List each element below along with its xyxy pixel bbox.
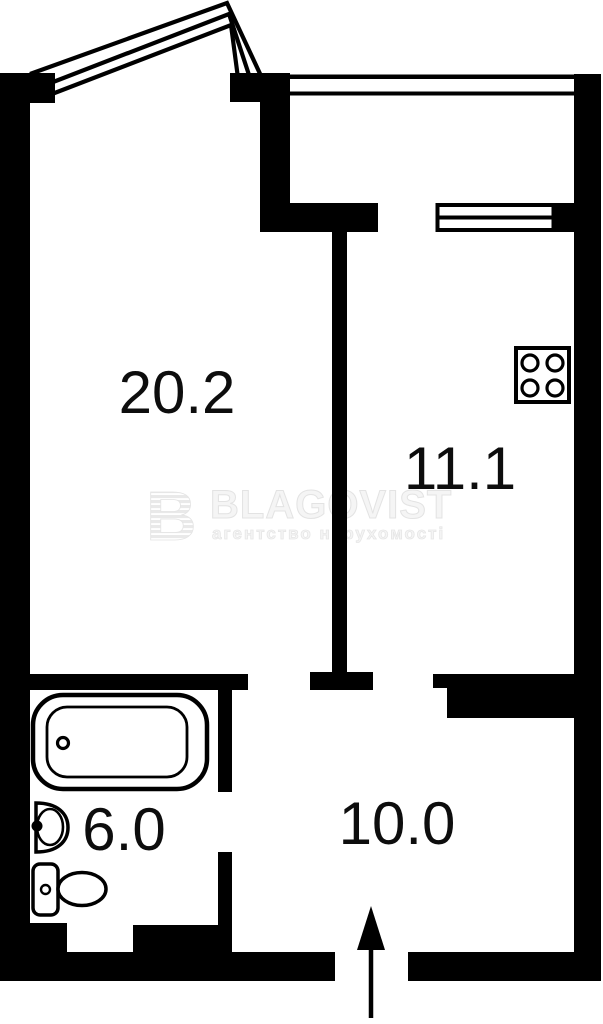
wall-bathroom-right-upper	[218, 690, 232, 792]
bay-window-line-inner	[52, 25, 238, 94]
stove-icon	[516, 348, 569, 402]
watermark-tagline-text: агентство нерухомості	[212, 524, 445, 543]
toilet-button	[41, 885, 50, 894]
floor-plan: B BLAGOVIST агентство нерухомості	[0, 0, 603, 1024]
bathtub-icon	[33, 695, 207, 789]
sink-tap	[32, 821, 43, 832]
wall-left-exterior	[0, 73, 30, 981]
wall-window-filler	[555, 203, 574, 232]
window-outer-line	[287, 75, 575, 80]
room-label-living: 20.2	[119, 359, 236, 426]
room-label-bathroom: 6.0	[82, 796, 165, 863]
floor-plan-canvas: B BLAGOVIST агентство нерухомості	[0, 0, 603, 1024]
bay-window-line-middle	[48, 14, 250, 84]
wall-loggia-left	[260, 100, 290, 204]
wall-bay-right-block	[230, 73, 290, 102]
sink-icon	[32, 803, 69, 852]
wall-middle-partition-cap	[310, 672, 373, 690]
wall-bottom-right	[408, 952, 601, 981]
wall-bathroom-bottom-left	[0, 923, 67, 952]
stove-burner	[547, 380, 563, 396]
entrance-arrow-head	[357, 906, 385, 950]
window-icon	[287, 75, 575, 96]
wall-bathroom-right-lower	[218, 852, 232, 925]
wall-bathroom-top	[18, 674, 248, 690]
stove-burner	[522, 380, 538, 396]
wall-kitchen-bottom	[447, 688, 574, 718]
wall-right-exterior	[574, 74, 601, 981]
window-inner-line	[287, 92, 575, 96]
wall-bathroom-bottom-right	[133, 925, 232, 952]
entrance-arrow-icon	[357, 906, 385, 1018]
toilet-bowl	[58, 873, 106, 906]
room-label-hallway: 10.0	[339, 790, 456, 857]
wall-loggia-bottom	[260, 203, 378, 232]
wall-bottom-left	[0, 952, 335, 981]
room-label-kitchen: 11.1	[404, 435, 516, 502]
stove-burner	[522, 355, 538, 371]
stove-burner	[547, 355, 563, 371]
window-unit-icon	[437, 205, 554, 230]
bathtub-drain	[58, 738, 69, 749]
watermark-logo-b: B	[146, 477, 197, 555]
bay-window-icon	[30, 3, 262, 94]
wall-kitchen-bottom-lip	[433, 674, 574, 688]
wall-middle-partition	[332, 232, 347, 672]
toilet-icon	[33, 864, 106, 915]
